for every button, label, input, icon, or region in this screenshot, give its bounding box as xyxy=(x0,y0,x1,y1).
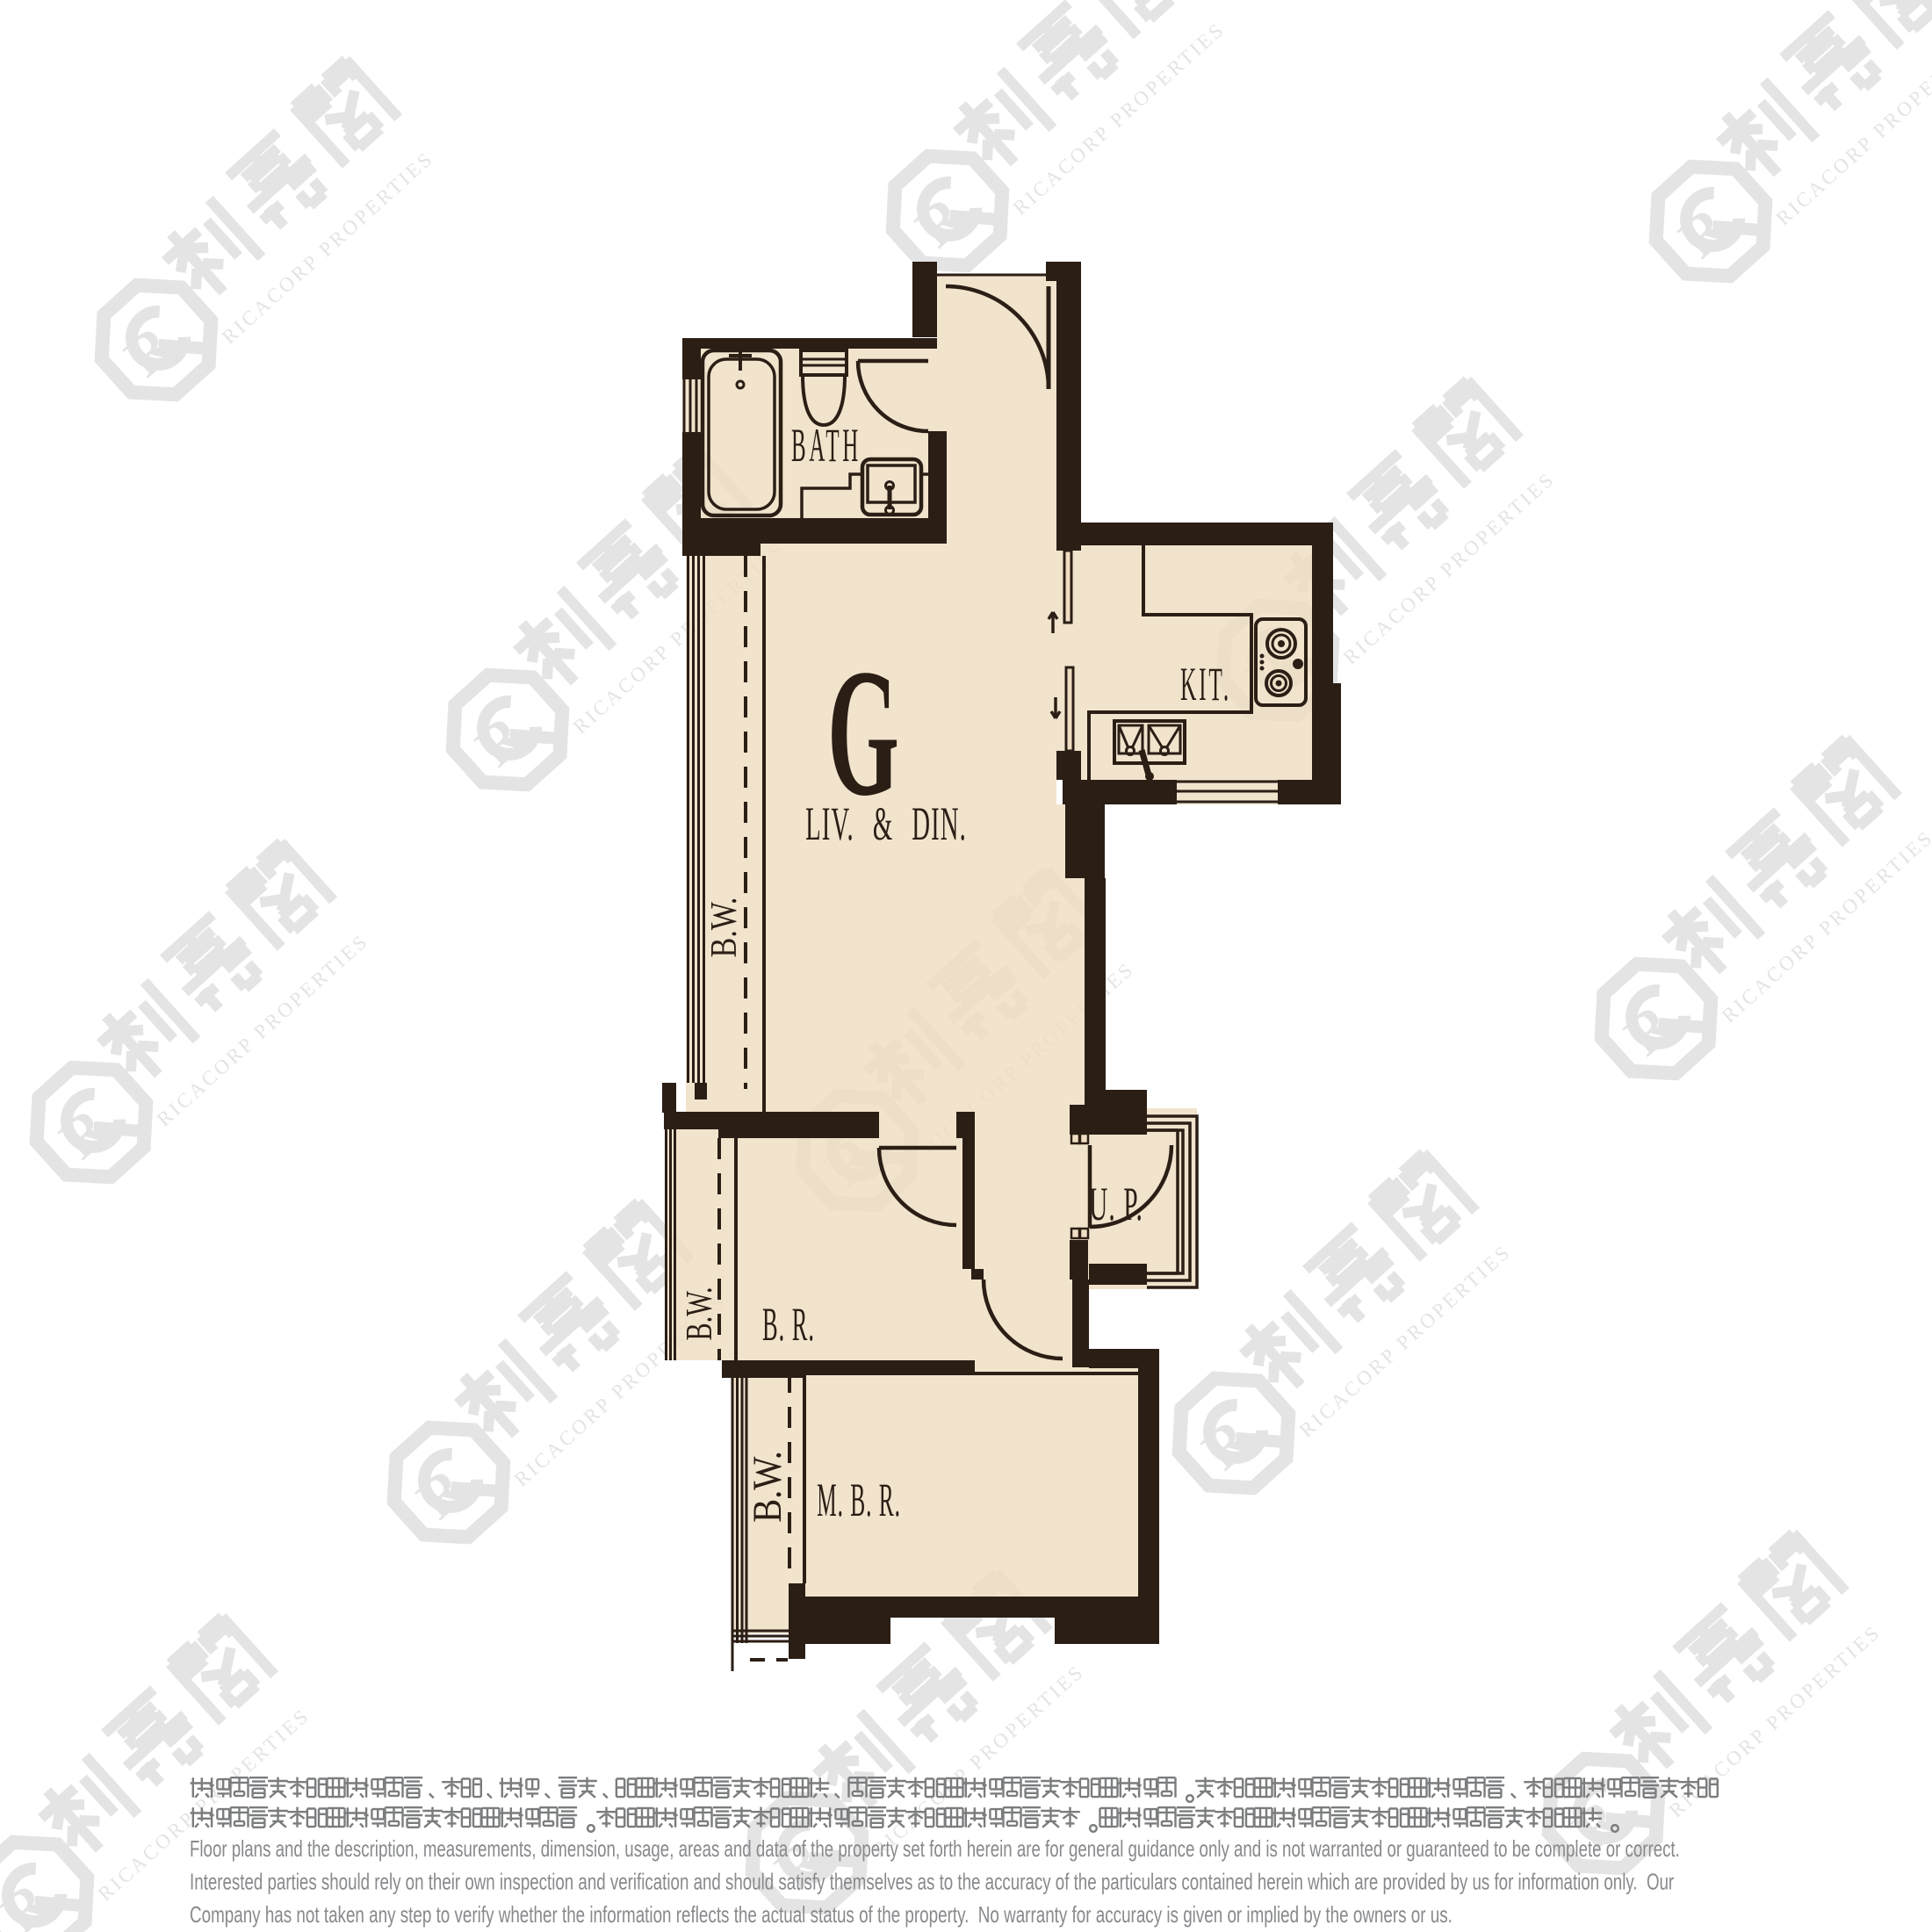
svg-text:B.W.: B.W. xyxy=(745,1451,789,1523)
svg-text:B. R.: B. R. xyxy=(762,1299,815,1352)
svg-text:B.W.: B.W. xyxy=(678,1287,719,1340)
svg-text:Company has not taken any step: Company has not taken any step to verify… xyxy=(190,1902,1453,1927)
svg-text:U. P.: U. P. xyxy=(1089,1179,1143,1231)
svg-text:KIT.: KIT. xyxy=(1180,659,1231,711)
svg-text:M. B. R.: M. B. R. xyxy=(817,1474,901,1527)
svg-text:Floor plans and the descriptio: Floor plans and the description, measure… xyxy=(190,1836,1680,1862)
svg-text:LIV. & DIN.: LIV. & DIN. xyxy=(805,798,967,851)
svg-text:BATH: BATH xyxy=(791,421,861,472)
svg-text:B.W.: B.W. xyxy=(704,898,745,958)
svg-text:Interested parties should rely: Interested parties should rely on their … xyxy=(190,1870,1675,1894)
